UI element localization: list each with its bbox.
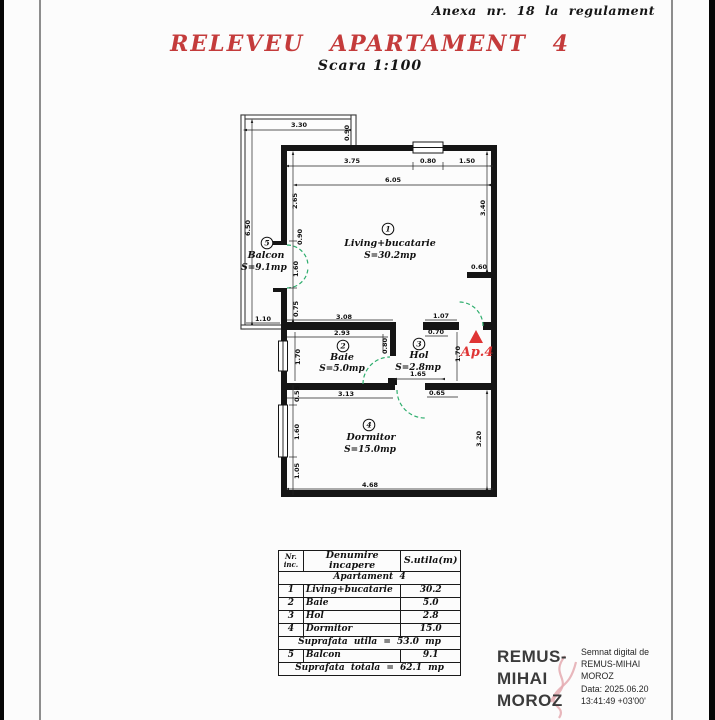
header-denumire: Denumire incapere: [303, 551, 401, 572]
room-name: Baie: [329, 352, 354, 363]
room-name: Hol: [409, 350, 429, 361]
areas-table: Nr. inc. Denumire incapere S.utila(m) Ap…: [278, 550, 461, 676]
window-symbols: [279, 142, 444, 457]
dimension-label: 1.07: [433, 312, 449, 320]
dimension-label: 3.30: [291, 121, 308, 129]
room-number: 3: [416, 340, 421, 349]
dimension-label: 0.55: [293, 386, 301, 403]
dimension-label: 1.05: [293, 463, 301, 480]
dimension-label: 1.70: [454, 346, 462, 363]
room-area: S=15.0mp: [344, 445, 396, 455]
room-name: Balcon: [247, 250, 285, 261]
table-row: 1 Living+bucatarie 30.2: [279, 584, 461, 597]
dimension-label: 3.75: [344, 157, 361, 165]
table-row: 4 Dormitor 15.0: [279, 623, 461, 636]
dimension-label: 1.60: [293, 424, 301, 441]
room-name: Living+bucatarie: [343, 238, 436, 249]
dimension-label: 1.10: [255, 315, 272, 323]
table-row: 3 Hol 2.8: [279, 610, 461, 623]
table-header-row: Nr. inc. Denumire incapere S.utila(m): [279, 551, 461, 572]
dimension-label: 0.65: [429, 389, 446, 397]
bedroom-door-arc: [397, 390, 425, 418]
table-group-row: Apartament 4: [279, 571, 461, 584]
dimension-label: 1.50: [459, 157, 476, 165]
room-number: 2: [339, 342, 345, 351]
bath-door-arc: [363, 357, 390, 384]
room-area: S=5.0mp: [319, 364, 365, 374]
entrance-marker: Ap.4: [459, 330, 494, 360]
table-total-row: Suprafata totala = 62.1 mp: [279, 662, 461, 675]
signature-name: REMUS- MIHAI MOROZ: [497, 646, 567, 712]
scanned-floor-plan-page: Anexa nr. 18 la regulament RELEVEU APART…: [0, 0, 715, 720]
dimension-label: 0.90: [296, 229, 304, 246]
dimension-label: 0.60: [471, 263, 488, 271]
entrance-label: Ap.4: [459, 345, 494, 360]
door-swing-arcs: [287, 245, 483, 418]
header-nr-inc: Nr. inc.: [279, 551, 304, 572]
dimension-label: 4.68: [362, 481, 379, 489]
room-number: 5: [264, 239, 269, 248]
dimension-label: 3.40: [479, 200, 487, 217]
dimension-label: 1.60: [292, 261, 300, 278]
dimension-label: 2.93: [334, 329, 350, 337]
dimension-label: 2.65: [291, 193, 299, 210]
dimension-label: 6.05: [385, 176, 402, 184]
signature-details: Semnat digital de REMUS-MIHAI MOROZ Data…: [581, 646, 649, 707]
dimension-label: 0.75: [292, 301, 300, 318]
dimension-label: 0.70: [428, 328, 445, 336]
dimension-label: 3.08: [336, 313, 353, 321]
room-number: 1: [385, 225, 390, 234]
dimension-label: 0.90: [343, 125, 351, 142]
table-row: 2 Baie 5.0: [279, 597, 461, 610]
dimension-label: 3.13: [338, 390, 354, 398]
room-area: S=30.2mp: [364, 251, 416, 261]
room-area: S=9.1mp: [241, 263, 287, 273]
dimension-label: 1.70: [294, 349, 302, 366]
dimension-label: 6.50: [244, 220, 252, 237]
room-area: S=2.8mp: [395, 363, 441, 373]
room-number: 4: [366, 421, 371, 430]
room-labels: 1Living+bucatarieS=30.2mp2BaieS=5.0mp3Ho…: [241, 223, 441, 455]
dimension-label: 0.80: [420, 157, 437, 165]
dimension-label: 0.80: [381, 338, 389, 355]
table-subtotal-row: Suprafata utila = 53.0 mp: [279, 636, 461, 649]
dimension-label: 3.20: [475, 431, 483, 448]
room-name: Dormitor: [346, 432, 397, 443]
entrance-door-arc: [459, 302, 483, 326]
header-s-utila: S.utila(m): [401, 551, 461, 572]
table-row: 5 Balcon 9.1: [279, 649, 461, 662]
entrance-triangle-icon: [469, 330, 483, 343]
